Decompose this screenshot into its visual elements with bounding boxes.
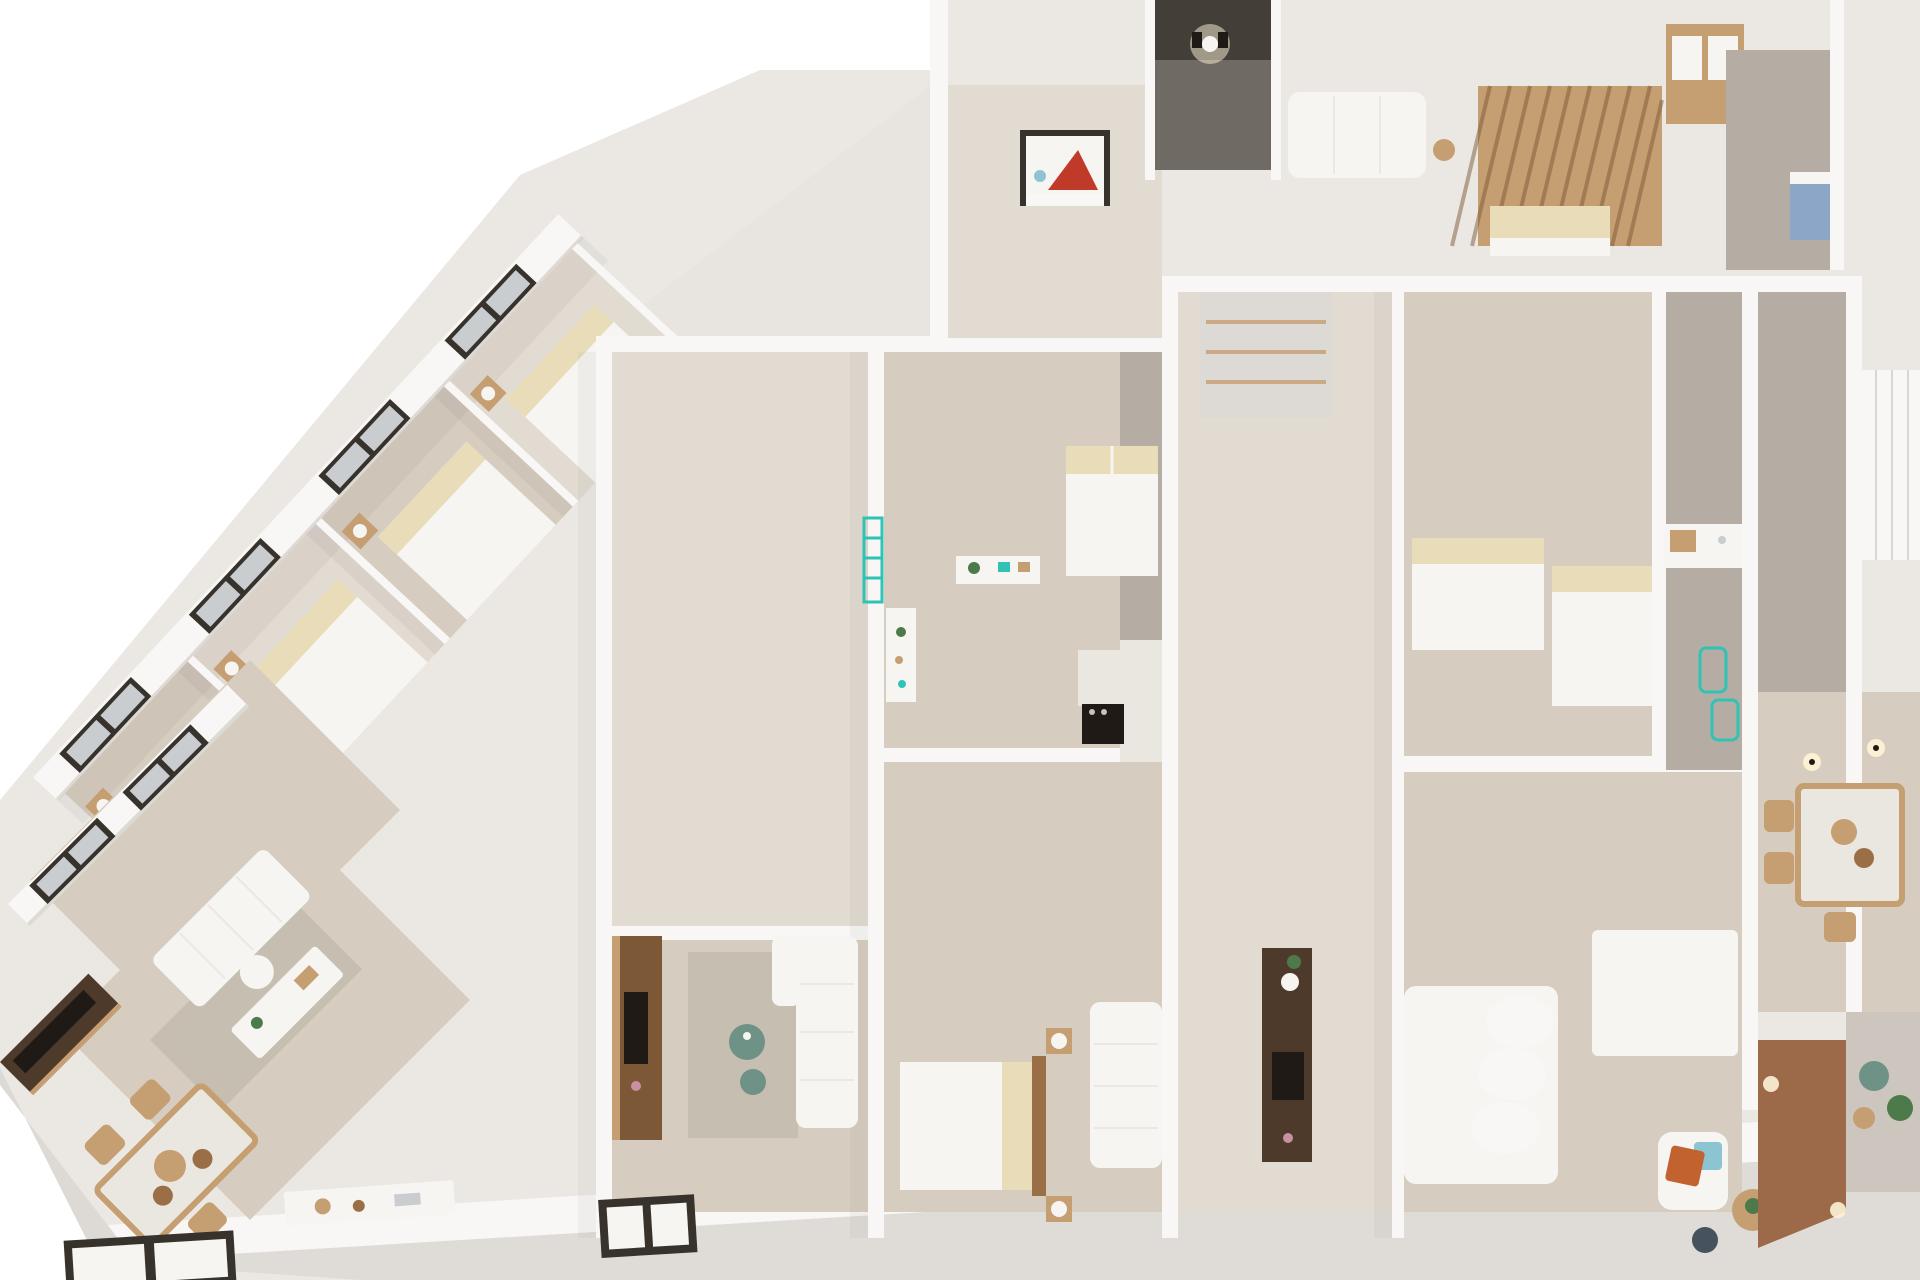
- central-living-room: [612, 936, 858, 1140]
- tv-screen: [1272, 1052, 1304, 1100]
- central-hall-floor: [612, 352, 868, 932]
- closet-box: [1672, 36, 1702, 80]
- window-pane: [154, 1239, 228, 1280]
- terrace-pouf: [1859, 1061, 1889, 1091]
- wall-sconce: [1763, 1076, 1779, 1092]
- plate: [1854, 848, 1874, 868]
- wall: [1271, 0, 1281, 180]
- dark-pouf: [1692, 1227, 1718, 1253]
- sideboard-tv: [1262, 948, 1312, 1162]
- east-corridor-floor: [1758, 292, 1846, 692]
- bedside-lamp: [1051, 1033, 1067, 1049]
- bathroom-east: [1664, 292, 1742, 770]
- armchair-orange: [1658, 1132, 1728, 1210]
- wall: [1830, 0, 1844, 270]
- wall: [1392, 276, 1404, 1238]
- side-table: [1433, 139, 1455, 161]
- wardrobe-body: [1200, 292, 1332, 418]
- cabinet-top: [1790, 172, 1830, 184]
- wall: [1145, 0, 1155, 180]
- sconce-fixture: [1218, 32, 1228, 48]
- shelf-decor-teal: [998, 562, 1010, 572]
- top-corridor: [1145, 0, 1281, 180]
- wall-shadow: [578, 352, 596, 1238]
- wall: [930, 0, 948, 338]
- sofa-body: [1288, 92, 1426, 178]
- sconce-fixture: [1809, 759, 1815, 765]
- wall: [1742, 276, 1758, 1110]
- terrace-pouf: [1887, 1095, 1913, 1121]
- wall-shadow: [1374, 292, 1392, 1238]
- wall-art-red: [1020, 130, 1110, 206]
- tv-wall-wood-edge: [612, 936, 620, 1140]
- wall: [1652, 276, 1666, 770]
- wood-chair: [1764, 852, 1794, 884]
- wood-chair: [1824, 912, 1856, 942]
- sofa-cushion: [1472, 1102, 1540, 1154]
- wall: [1162, 276, 1178, 1238]
- white-sofa-large: [1404, 986, 1558, 1184]
- bed-headboard: [1032, 1056, 1046, 1196]
- console-shelf: [886, 608, 916, 702]
- sconce-fixture: [1192, 32, 1202, 48]
- kitchen-floor-marble: [1120, 640, 1162, 762]
- sofa-cushion: [1486, 996, 1554, 1048]
- bed-pillows: [1552, 566, 1652, 592]
- dining-table-marble: [1798, 786, 1902, 904]
- white-sofa: [1090, 1002, 1162, 1168]
- window-pane: [650, 1203, 688, 1247]
- oven-knob: [1089, 709, 1095, 715]
- vase: [1281, 973, 1299, 991]
- window-pane: [72, 1244, 146, 1280]
- bed-pillows: [1002, 1062, 1032, 1190]
- double-bed: [1066, 446, 1158, 576]
- wall: [868, 336, 884, 1238]
- decor-flowers: [631, 1081, 641, 1091]
- plant-pot: [1287, 955, 1301, 969]
- art-sill: [1026, 194, 1104, 206]
- central-kitchen: [1078, 640, 1162, 762]
- top-room-floor: [948, 85, 1162, 338]
- tv-screen: [624, 992, 648, 1064]
- single-bed: [1412, 538, 1544, 650]
- shelf-plant: [896, 627, 906, 637]
- single-bed: [1552, 566, 1652, 706]
- window-dark-frame: [598, 1194, 697, 1258]
- art-teal-shape: [1034, 170, 1046, 182]
- floorplan-render: [0, 0, 1920, 1280]
- kitchen-island: [1078, 650, 1126, 706]
- shelf-decor-teal: [898, 680, 906, 688]
- wall: [596, 336, 612, 1238]
- serving-bowl: [1831, 819, 1857, 845]
- bed-sheet: [1490, 238, 1610, 256]
- vanity-wood-box: [1670, 530, 1696, 552]
- bed-pillows: [1412, 538, 1544, 564]
- wall: [596, 336, 1162, 352]
- decor-flowers: [1283, 1133, 1293, 1143]
- wardrobe-right: [1862, 370, 1920, 560]
- wardrobe-closets: [1200, 292, 1332, 418]
- sofa-cushion: [1478, 1048, 1546, 1100]
- daybed: [1592, 930, 1738, 1056]
- sink-drain: [1718, 536, 1726, 544]
- sconce-fixture: [1873, 745, 1879, 751]
- entry-wood-floor: [1758, 1040, 1846, 1248]
- canopy-bedroom: [1452, 86, 1662, 256]
- terrace-pouf: [1853, 1107, 1875, 1129]
- wood-chair: [1764, 800, 1794, 832]
- shelf-decor-wood: [1018, 562, 1030, 572]
- coffee-table-green: [729, 1024, 765, 1060]
- window-pane: [607, 1205, 645, 1249]
- wall: [1162, 276, 1862, 292]
- terrace-east: [1846, 1012, 1920, 1192]
- central-apartment: [578, 336, 1162, 1238]
- wall-sconce: [1830, 1202, 1846, 1218]
- bedside-lamp: [1051, 1201, 1067, 1217]
- coffee-table-green: [740, 1069, 766, 1095]
- shelf-plant: [968, 562, 980, 574]
- sink: [394, 1193, 421, 1207]
- shelf-decor-wood: [895, 656, 903, 664]
- east-apartments: [1162, 276, 1920, 1253]
- sofa-chaise: [772, 936, 800, 1006]
- wall-sconce: [1202, 36, 1218, 52]
- oven-knob: [1101, 709, 1107, 715]
- floorplan-svg: [0, 0, 1920, 1280]
- table-lamp: [743, 1032, 751, 1040]
